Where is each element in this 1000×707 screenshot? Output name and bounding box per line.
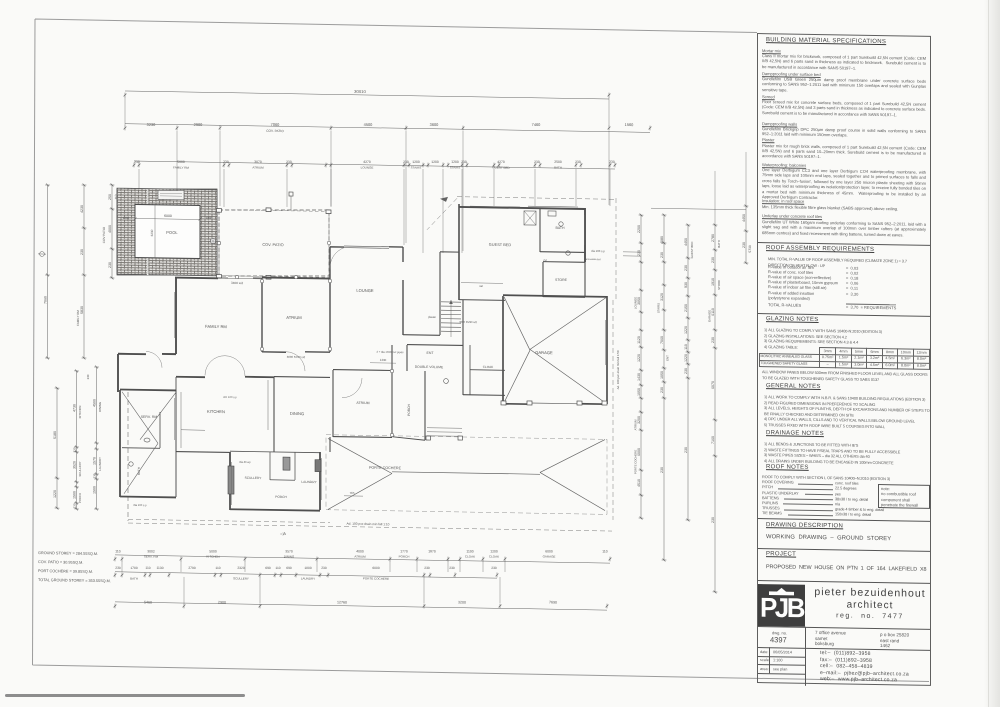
svg-text:6000: 6000 xyxy=(372,566,380,570)
svg-text:1200: 1200 xyxy=(431,160,439,164)
svg-text:7060: 7060 xyxy=(44,296,48,304)
svg-text:5730: 5730 xyxy=(748,245,752,253)
svg-text:1220: 1220 xyxy=(53,490,57,498)
svg-text:ENT: ENT xyxy=(427,351,435,355)
svg-text:PORTE COCHERE: PORTE COCHERE xyxy=(634,450,638,475)
svg-text:GUEST BED: GUEST BED xyxy=(690,242,694,259)
svg-text:1050: 1050 xyxy=(660,371,664,379)
svg-text:GARAGE: GARAGE xyxy=(708,310,712,323)
svg-text:4080: 4080 xyxy=(660,236,664,244)
svg-text:230: 230 xyxy=(73,447,77,452)
svg-text:2790: 2790 xyxy=(188,566,196,570)
svg-text:230: 230 xyxy=(286,160,292,164)
svg-text:CLOAK: CLOAK xyxy=(483,365,494,369)
svg-text:CLOAK: CLOAK xyxy=(465,555,475,559)
svg-text:2900: 2900 xyxy=(218,600,226,604)
svg-text:230: 230 xyxy=(491,566,497,570)
svg-text:PJB: PJB xyxy=(759,592,804,623)
svg-text:LOUNGE: LOUNGE xyxy=(361,165,374,169)
svg-text:LAUNDRY: LAUNDRY xyxy=(301,480,317,484)
svg-text:KITCHEN: KITCHEN xyxy=(206,555,219,559)
svg-text:230: 230 xyxy=(108,262,112,268)
svg-text:5830: 5830 xyxy=(80,306,84,314)
svg-text:230: 230 xyxy=(609,160,615,164)
svg-text:LAUNDRY: LAUNDRY xyxy=(98,457,102,471)
svg-text:3600: 3600 xyxy=(430,122,439,127)
svg-text:3230: 3230 xyxy=(147,122,156,127)
svg-text:GARAGE: GARAGE xyxy=(535,350,553,355)
svg-text:KITCHEN: KITCHEN xyxy=(78,406,82,419)
svg-text:KITCHEN: KITCHEN xyxy=(207,409,225,414)
svg-text:LOUNGE: LOUNGE xyxy=(356,288,374,293)
svg-text:GUEST BED: GUEST BED xyxy=(492,165,510,169)
svg-text:230: 230 xyxy=(86,374,90,379)
svg-text:930: 930 xyxy=(684,282,688,288)
svg-text:230: 230 xyxy=(684,447,688,453)
svg-text:STAIRS: STAIRS xyxy=(657,303,661,313)
svg-text:1500: 1500 xyxy=(73,491,77,499)
svg-text:230: 230 xyxy=(115,566,121,570)
svg-text:ATRIUM: ATRIUM xyxy=(286,315,302,320)
svg-text:BATH: BATH xyxy=(717,240,721,248)
svg-text:6000: 6000 xyxy=(164,214,172,218)
svg-text:4730: 4730 xyxy=(73,404,77,412)
svg-text:2200: 2200 xyxy=(637,225,641,233)
svg-text:1050: 1050 xyxy=(637,388,641,396)
svg-text:5000: 5000 xyxy=(177,160,185,164)
svg-text:STORE: STORE xyxy=(555,278,568,282)
svg-text:2780: 2780 xyxy=(711,234,715,242)
svg-text:3070: 3070 xyxy=(254,160,262,164)
svg-text:1910: 1910 xyxy=(711,278,715,286)
svg-text:STAIRS: STAIRS xyxy=(411,166,422,170)
svg-text:ATRIUM: ATRIUM xyxy=(252,165,264,169)
svg-text:BATH: BATH xyxy=(554,165,562,169)
svg-text:FAMILY RM: FAMILY RM xyxy=(173,165,189,169)
svg-text:110: 110 xyxy=(115,549,121,553)
svg-text:SERV. RM: SERV. RM xyxy=(144,554,159,558)
svg-text:FAMILY RM: FAMILY RM xyxy=(205,324,227,329)
svg-text:3002: 3002 xyxy=(147,549,155,553)
svg-text:GUEST BED: GUEST BED xyxy=(489,242,512,247)
svg-text:CLOAK: CLOAK xyxy=(489,555,499,559)
svg-text:3000 SY80 s/d: 3000 SY80 s/d xyxy=(287,355,306,359)
svg-text:1500: 1500 xyxy=(93,486,97,494)
svg-text:250: 250 xyxy=(108,194,112,200)
svg-text:230: 230 xyxy=(711,517,715,523)
svg-text:STAIRS: STAIRS xyxy=(450,165,461,169)
svg-text:12760: 12760 xyxy=(337,600,347,604)
svg-text:PORTE COCHERE: PORTE COCHERE xyxy=(369,466,402,471)
svg-text:690: 690 xyxy=(265,566,271,570)
svg-text:1120: 1120 xyxy=(637,336,641,344)
svg-text:rail: rail xyxy=(479,284,483,288)
svg-text:230: 230 xyxy=(575,160,581,164)
svg-text:GROUND STOREY = 284.55SQ.M.: GROUND STOREY = 284.55SQ.M. xyxy=(38,551,98,556)
svg-text:7690: 7690 xyxy=(549,600,557,604)
svg-text:230: 230 xyxy=(742,242,746,248)
svg-text:4500: 4500 xyxy=(93,399,97,407)
svg-text:230: 230 xyxy=(637,250,641,256)
svg-text:3050: 3050 xyxy=(637,297,641,305)
svg-text:230: 230 xyxy=(711,337,715,343)
svg-text:1780: 1780 xyxy=(130,566,138,570)
svg-text:110: 110 xyxy=(145,566,150,570)
svg-text:COV. PATIO = 30.95SQ.M.: COV. PATIO = 30.95SQ.M. xyxy=(38,560,83,565)
svg-text:3200: 3200 xyxy=(637,416,641,424)
svg-text:1220: 1220 xyxy=(637,354,641,362)
svg-text:230: 230 xyxy=(403,160,409,164)
svg-text:4000: 4000 xyxy=(356,549,364,553)
svg-text:7160: 7160 xyxy=(711,436,715,444)
svg-text:1570: 1570 xyxy=(93,457,97,465)
svg-text:6000: 6000 xyxy=(637,448,641,456)
svg-text:230: 230 xyxy=(684,265,688,271)
svg-text:230: 230 xyxy=(660,467,664,473)
svg-text:2900: 2900 xyxy=(194,122,203,127)
svg-text:5180: 5180 xyxy=(53,431,57,439)
svg-text:BATH: BATH xyxy=(137,467,141,475)
svg-text:DINING: DINING xyxy=(98,401,102,412)
svg-text:dia 100 s.p: dia 100 s.p xyxy=(133,503,147,507)
svg-text:230: 230 xyxy=(461,160,467,164)
svg-text:3230: 3230 xyxy=(150,229,154,236)
svg-text:ATRIUM: ATRIUM xyxy=(356,401,369,405)
svg-text:3120: 3120 xyxy=(660,293,664,301)
svg-text:110: 110 xyxy=(275,566,280,570)
svg-text:1220: 1220 xyxy=(684,354,688,362)
svg-text:PORCH: PORCH xyxy=(78,493,82,503)
svg-text:110: 110 xyxy=(215,566,220,570)
svg-text:2320: 2320 xyxy=(237,566,245,570)
svg-text:Ad. 100 s.p: Ad. 100 s.p xyxy=(223,395,237,399)
svg-text:1200: 1200 xyxy=(490,549,498,553)
svg-text:plaster: plaster xyxy=(428,315,436,319)
svg-text:765: 765 xyxy=(349,491,354,495)
svg-text:4270: 4270 xyxy=(497,160,505,164)
svg-text:COV. PATIO: COV. PATIO xyxy=(262,242,283,247)
svg-text:dia 100 s.p: dia 100 s.p xyxy=(591,249,605,253)
svg-text:6110: 6110 xyxy=(711,308,715,316)
svg-text:1000: 1000 xyxy=(206,216,213,220)
svg-text:SCULLERY: SCULLERY xyxy=(245,476,263,480)
svg-text:1560: 1560 xyxy=(625,122,634,127)
svg-text:ATRIUM: ATRIUM xyxy=(634,419,638,431)
svg-text:230: 230 xyxy=(711,257,715,263)
svg-text:4270: 4270 xyxy=(363,160,371,164)
svg-text:6070: 6070 xyxy=(711,381,715,389)
svg-text:3200: 3200 xyxy=(458,600,466,604)
svg-text:removable duct: removable duct xyxy=(585,258,601,261)
svg-text:PORCH: PORCH xyxy=(275,495,287,499)
svg-text:1200: 1200 xyxy=(412,160,420,164)
svg-text:230: 230 xyxy=(321,566,327,570)
svg-text:230: 230 xyxy=(93,473,97,478)
svg-text:4000: 4000 xyxy=(108,225,112,233)
svg-text:COV PATIO: COV PATIO xyxy=(102,226,106,243)
svg-text:POOL: POOL xyxy=(166,230,178,235)
svg-text:5460: 5460 xyxy=(144,600,152,604)
svg-text:1770: 1770 xyxy=(400,549,408,553)
svg-text:PORTE COCHERE: PORTE COCHERE xyxy=(363,576,389,580)
svg-text:Ad. 100 pvc drain min fall 1:5: Ad. 100 pvc drain min fall 1:50 xyxy=(616,350,620,389)
svg-text:PORCH: PORCH xyxy=(399,555,410,559)
svg-text:4450: 4450 xyxy=(684,238,688,246)
svg-text:STORE: STORE xyxy=(717,280,721,290)
svg-text:4450: 4450 xyxy=(742,214,746,222)
svg-text:SCULLERY: SCULLERY xyxy=(233,576,249,580)
svg-text:DINING: DINING xyxy=(284,555,295,559)
svg-text:1430: 1430 xyxy=(637,373,641,381)
svg-text:GARAGE: GARAGE xyxy=(543,555,556,559)
svg-text:230: 230 xyxy=(449,566,455,570)
svg-text:110: 110 xyxy=(602,549,608,553)
svg-text:1430: 1430 xyxy=(380,358,387,362)
svg-text:BATH: BATH xyxy=(555,226,565,230)
svg-text:Ad. 100 pvc drain min fall 1:1: Ad. 100 pvc drain min fall 1:10 xyxy=(347,522,390,527)
svg-text:BATH: BATH xyxy=(130,577,138,581)
svg-text:5000: 5000 xyxy=(209,549,217,553)
svg-text:TOTAL GROUND STOREY = 353.55SQ: TOTAL GROUND STOREY = 353.55SQ.M. xyxy=(38,578,111,583)
svg-text:6000: 6000 xyxy=(545,549,553,553)
svg-text:1220: 1220 xyxy=(684,326,688,334)
svg-text:690: 690 xyxy=(286,566,292,570)
svg-text:SERV. RM: SERV. RM xyxy=(141,415,158,419)
svg-text:7060: 7060 xyxy=(271,122,280,127)
svg-text:PORCH: PORCH xyxy=(407,403,411,416)
svg-text:230: 230 xyxy=(660,252,664,258)
svg-text:3570: 3570 xyxy=(285,549,293,553)
svg-text:30010: 30010 xyxy=(354,89,366,94)
svg-text:4500: 4500 xyxy=(364,122,373,127)
svg-text:110: 110 xyxy=(684,344,688,350)
svg-text:1870: 1870 xyxy=(428,549,436,553)
svg-text:230: 230 xyxy=(73,503,77,508)
svg-text:4230: 4230 xyxy=(80,205,84,213)
svg-text:COV. PATIO: COV. PATIO xyxy=(266,129,284,133)
svg-text:4510: 4510 xyxy=(637,479,641,487)
svg-text:1200: 1200 xyxy=(451,160,459,164)
svg-text:230: 230 xyxy=(660,387,664,393)
svg-text:ENT: ENT xyxy=(666,355,670,361)
svg-text:1100: 1100 xyxy=(466,549,473,553)
svg-text:3400 s/d: 3400 s/d xyxy=(231,281,243,285)
svg-text:1130: 1130 xyxy=(156,566,163,570)
svg-text:cyl: cyl xyxy=(543,258,547,262)
svg-text:230: 230 xyxy=(534,160,540,164)
svg-text:1000: 1000 xyxy=(123,216,130,220)
svg-text:3520: 3520 xyxy=(73,461,77,469)
svg-text:LOUNGE: LOUNGE xyxy=(634,297,638,309)
svg-text:FAMILY RM: FAMILY RM xyxy=(76,310,80,326)
svg-text:2150: 2150 xyxy=(684,304,688,312)
svg-text:◁A: ◁A xyxy=(280,531,286,536)
svg-text:2500: 2500 xyxy=(554,160,562,164)
svg-text:7460: 7460 xyxy=(532,122,541,127)
svg-text:ATRIUM: ATRIUM xyxy=(354,554,366,558)
svg-text:230: 230 xyxy=(80,249,84,255)
svg-text:DINING: DINING xyxy=(290,411,304,416)
svg-text:PORT COCHERE = 39.85SQ.M.: PORT COCHERE = 39.85SQ.M. xyxy=(38,569,93,574)
svg-text:230: 230 xyxy=(684,368,688,374)
svg-text:1800: 1800 xyxy=(304,566,312,570)
svg-text:LAUNDRY: LAUNDRY xyxy=(301,576,315,580)
svg-text:2 + dia 1030 pvc pipes: 2 + dia 1030 pvc pipes xyxy=(377,350,405,354)
svg-text:dia 40 wp: dia 40 wp xyxy=(239,460,251,464)
svg-text:DOUBLE VOLUME: DOUBLE VOLUME xyxy=(415,365,444,369)
svg-text:230: 230 xyxy=(134,160,140,164)
svg-text:SCULLERY: SCULLERY xyxy=(78,461,82,476)
svg-text:7060: 7060 xyxy=(660,336,664,344)
svg-text:230: 230 xyxy=(223,160,229,164)
svg-text:230: 230 xyxy=(424,566,430,570)
svg-text:3000 DV80 s/d: 3000 DV80 s/d xyxy=(459,320,477,324)
